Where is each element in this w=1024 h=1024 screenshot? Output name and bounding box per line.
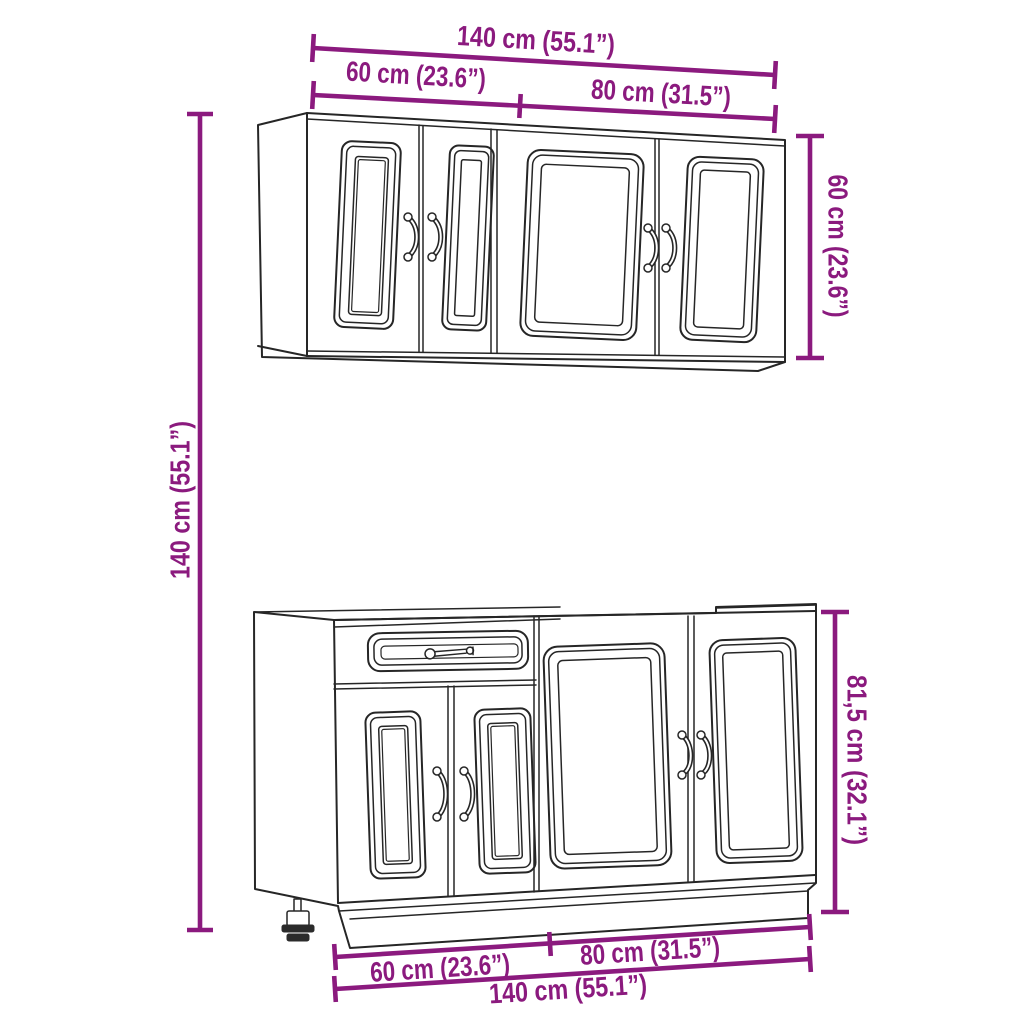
adjustable-foot (282, 899, 314, 941)
diagram-canvas: 140 cm (55.1”) 60 cm (23.6”) 80 cm (31.5… (0, 0, 1024, 1024)
handle-post (428, 253, 436, 261)
handle-post (678, 771, 686, 779)
foot-pad (287, 934, 309, 941)
dim-tick (774, 105, 776, 133)
handle-post (433, 767, 441, 775)
dim-label-wall-left-width: 60 cm (23.6”) (345, 55, 487, 94)
handle-post (697, 771, 705, 779)
handle-post (460, 813, 468, 821)
wall-cabinet-drawing (258, 113, 785, 371)
handle-post (644, 264, 652, 272)
dim-label-wall-height: 60 cm (23.6”) (823, 175, 854, 318)
dim-label-base-height: 81,5 cm (32.1”) (842, 675, 873, 845)
foot-flange (282, 925, 314, 932)
handle-post (428, 213, 436, 221)
dim-tick (519, 94, 520, 118)
dim-tick (334, 976, 336, 1002)
handle-post (678, 731, 686, 739)
dim-label-base-total-width: 140 cm (55.1”) (488, 969, 648, 1010)
handle-post (404, 253, 412, 261)
dim-label-wall-right-width: 80 cm (31.5”) (590, 73, 732, 112)
dim-label-total-height: 140 cm (55.1”) (165, 421, 196, 579)
dim-tick (774, 61, 776, 89)
dim-tick (312, 34, 314, 62)
handle-post (644, 224, 652, 232)
dim-label-wall-total-width: 140 cm (55.1”) (456, 20, 616, 60)
dim-tick (312, 81, 314, 109)
handle-post (697, 731, 705, 739)
dim-tick (809, 914, 811, 940)
handle-post (662, 264, 670, 272)
handle-post (460, 767, 468, 775)
handle-post (662, 224, 670, 232)
base-cabinet-drawing (254, 604, 816, 948)
dim-tick (334, 944, 336, 970)
dim-tick (809, 946, 811, 972)
handle-post (404, 213, 412, 221)
handle-post (433, 813, 441, 821)
dim-tick (549, 932, 551, 956)
base-top-back-edge (254, 607, 560, 612)
kitchen-cabinet-dimension-diagram: 140 cm (55.1”) 60 cm (23.6”) 80 cm (31.5… (0, 0, 1024, 1024)
